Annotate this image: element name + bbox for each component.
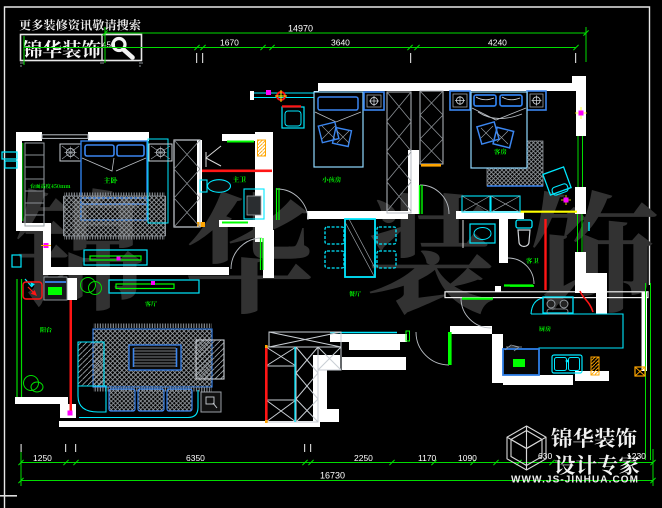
svg-text:WWW.JS-JINHUA.COM: WWW.JS-JINHUA.COM (511, 475, 638, 486)
svg-text:2250: 2250 (354, 453, 373, 463)
svg-text:1670: 1670 (220, 38, 239, 48)
svg-text:1250: 1250 (33, 453, 52, 463)
svg-text:14970: 14970 (288, 24, 313, 34)
svg-text:3640: 3640 (331, 38, 350, 48)
svg-text:1090: 1090 (458, 453, 477, 463)
svg-text:4240: 4240 (488, 38, 507, 48)
svg-text:6350: 6350 (186, 453, 205, 463)
svg-text:16730: 16730 (320, 471, 345, 481)
svg-text:1170: 1170 (418, 453, 437, 463)
